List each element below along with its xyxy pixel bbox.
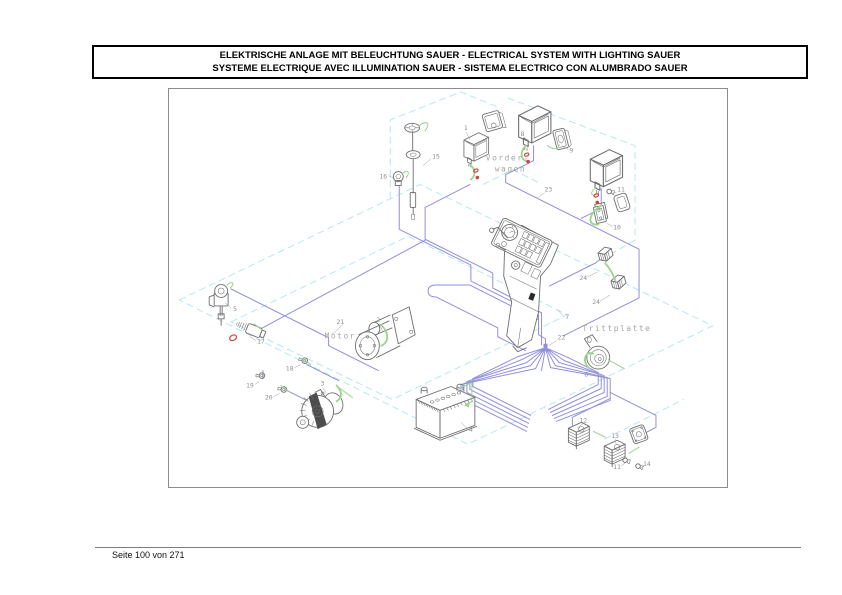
mirror-plate bbox=[482, 109, 506, 133]
area-label-front-2: wagen bbox=[495, 165, 526, 174]
rear-lamp-12 bbox=[568, 422, 589, 449]
gasket-ring bbox=[613, 192, 631, 212]
rear-lamp-plate bbox=[629, 424, 648, 444]
control-console bbox=[490, 217, 559, 351]
connector-24-upper bbox=[597, 246, 614, 263]
small-sensor-16 bbox=[393, 172, 403, 186]
callout-10: 10 bbox=[613, 223, 621, 231]
callout-9: 9 bbox=[569, 147, 573, 155]
callout-13: 13 bbox=[611, 432, 619, 440]
callout-15: 15 bbox=[432, 153, 440, 161]
footer-divider bbox=[95, 547, 801, 548]
title-line-2: SYSTEME ELECTRIQUE AVEC ILLUMINATION SAU… bbox=[94, 62, 806, 75]
horn bbox=[584, 335, 609, 369]
callout-16: 16 bbox=[379, 173, 387, 181]
callout-23: 23 bbox=[545, 185, 553, 193]
callout-4: 4 bbox=[469, 425, 473, 433]
callout-3: 3 bbox=[321, 380, 325, 388]
starter-motor bbox=[355, 307, 415, 360]
area-label-engine: Motor bbox=[325, 332, 356, 341]
callout-11-front: 11 bbox=[617, 185, 625, 193]
alternator bbox=[297, 389, 347, 429]
callout-18: 18 bbox=[286, 365, 294, 373]
headlamp-8 bbox=[519, 106, 551, 151]
callout-8: 8 bbox=[521, 130, 525, 138]
title-box: ELEKTRISCHE ANLAGE MIT BELEUCHTUNG SAUER… bbox=[92, 45, 808, 79]
callout-14: 14 bbox=[643, 460, 651, 468]
page-indicator: Seite 100 von 271 bbox=[112, 550, 185, 560]
callout-11-rear: 11 bbox=[613, 463, 621, 471]
area-label-front-1: Vorder- bbox=[486, 154, 530, 163]
bulb-front-11 bbox=[606, 189, 614, 195]
callout-24-upper: 24 bbox=[579, 274, 587, 282]
title-line-1: ELEKTRISCHE ANLAGE MIT BELEUCHTUNG SAUER… bbox=[94, 49, 806, 62]
manual-page: { "header": { "title_line1": "ELEKTRISCH… bbox=[0, 0, 842, 595]
diagram-box: 1 15 16 8 9 23 11 10 24 24 7 22 21 2 5 1… bbox=[168, 88, 728, 488]
callout-21: 21 bbox=[337, 318, 345, 326]
wiring-diagram-svg: 1 15 16 8 9 23 11 10 24 24 7 22 21 2 5 1… bbox=[169, 89, 727, 487]
callout-17: 17 bbox=[257, 338, 265, 346]
callout-7: 7 bbox=[565, 313, 569, 321]
callout-6: 6 bbox=[584, 371, 588, 379]
callout-5: 5 bbox=[233, 305, 237, 313]
bulb-rear-11 bbox=[622, 457, 630, 464]
callout-22: 22 bbox=[557, 334, 565, 342]
callout-19: 19 bbox=[246, 382, 254, 390]
callout-12: 12 bbox=[579, 416, 587, 424]
callout-24-lower: 24 bbox=[592, 298, 600, 306]
callout-2: 2 bbox=[376, 316, 380, 324]
callout-1: 1 bbox=[464, 124, 468, 132]
area-label-footboard: Trittplatte bbox=[582, 324, 651, 333]
callout-20: 20 bbox=[265, 393, 273, 401]
